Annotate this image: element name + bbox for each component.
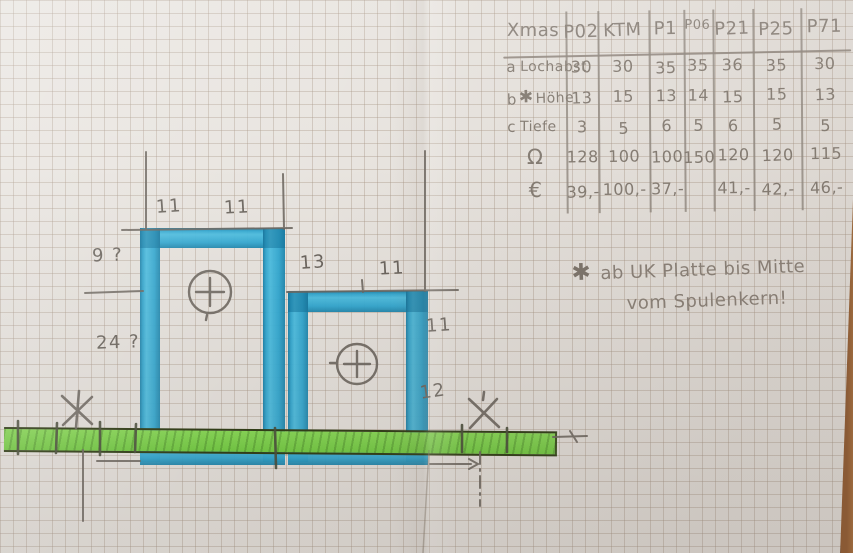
table-corner-label: Xmas: [505, 8, 565, 52]
tape-band-right: [263, 228, 285, 462]
row-key: b: [507, 91, 518, 109]
footnote-star-icon: ✱: [571, 259, 592, 286]
table-col-header: P21: [711, 5, 753, 51]
row-star: ✱: [519, 87, 534, 107]
table-cell: 39,-: [567, 173, 600, 210]
table-cell: 150: [684, 141, 714, 172]
table-cell: 15: [598, 80, 649, 111]
table-col-header: KTM: [596, 7, 649, 53]
table-col-header: P25: [751, 6, 800, 51]
table-cell: 42,-: [754, 170, 803, 207]
table-cell: 5: [598, 112, 650, 143]
table-cell: 41,-: [714, 169, 754, 206]
table-cell: 13: [800, 78, 850, 110]
table-cell: 128: [566, 141, 598, 171]
table-col-header: P02: [564, 9, 597, 54]
tape-overlap-corner: [406, 291, 428, 312]
table-cell: 15: [712, 81, 753, 112]
table-cell: 5: [801, 109, 851, 140]
table-row-label: €: [507, 172, 567, 208]
dim-label-left-lower: 24 ?: [96, 331, 141, 354]
dim-label-left-upper: 9 ?: [92, 244, 124, 266]
row-name: Lochabst: [520, 59, 587, 75]
table-cell: 120: [753, 139, 802, 171]
table-cell: 3: [566, 111, 598, 141]
row-key: Ω: [527, 145, 544, 169]
dim-label-right-upper: 11: [425, 314, 452, 337]
table-cell: 46,-: [801, 168, 851, 206]
table-cell: 120: [713, 139, 753, 170]
table-cell: 5: [753, 108, 801, 139]
photo-of-sketch: 11 11 13 11 9 ? 24 ? 11 12 ✱ab UK Platte…: [0, 0, 853, 553]
table-row-label: a Lochabst: [505, 52, 565, 82]
table-cell: 100: [598, 140, 649, 171]
dim-label-left-top-right: 11: [223, 196, 250, 218]
table-cell: [685, 170, 714, 206]
table-cell: 14: [684, 80, 713, 110]
spec-table: Xmas P02 KTM P1 P06 P21 P25 P71 a Lochab…: [505, 4, 852, 217]
table-col-header: P06: [683, 6, 712, 50]
dim-label-right-top-right: 11: [378, 257, 405, 279]
table-cell: 35: [752, 49, 801, 81]
dim-label-right-lower: 12: [419, 379, 448, 403]
dim-label-right-top-left: 13: [299, 251, 326, 274]
table-cell: 5: [684, 110, 713, 140]
table-grid: Xmas P02 KTM P1 P06 P21 P25 P71 a Lochab…: [505, 4, 852, 209]
row-key: c: [507, 118, 516, 136]
table-cell: 35: [648, 52, 684, 83]
tape-band-left: [140, 228, 160, 462]
table-cell: 15: [753, 78, 801, 109]
tape-overlap-corner: [288, 291, 308, 312]
footnote-text1: ab UK Platte bis Mitte: [600, 256, 806, 284]
table-row-label: b ✱ Höhe: [505, 83, 566, 115]
table-cell: 100,-: [599, 170, 650, 207]
dim-label-left-top-left: 11: [155, 195, 182, 218]
table-cell: 115: [801, 138, 850, 169]
tape-overlap-corner: [263, 228, 285, 248]
tape-overlap-corner: [140, 228, 160, 248]
table-cell: 35: [683, 50, 712, 80]
table-row-label: Ω: [507, 142, 567, 172]
base-plate-bar: [4, 427, 557, 456]
table-cell: 13: [649, 80, 684, 110]
table-cell: 6: [713, 109, 754, 141]
table-cell: 100: [649, 140, 685, 171]
table-cell: 6: [649, 110, 684, 140]
table-col-header: P1: [648, 6, 684, 50]
table-cell: 13: [565, 82, 598, 113]
footnote: ✱ab UK Platte bis Mitte vom Spulenkern!: [571, 248, 807, 320]
table-col-header: P71: [800, 4, 850, 49]
row-key: €: [529, 178, 543, 202]
row-name: Tiefe: [520, 119, 557, 135]
table-row-label: c Tiefe: [506, 112, 566, 142]
table-cell: 37,-: [650, 170, 685, 206]
row-key: a: [506, 58, 516, 76]
